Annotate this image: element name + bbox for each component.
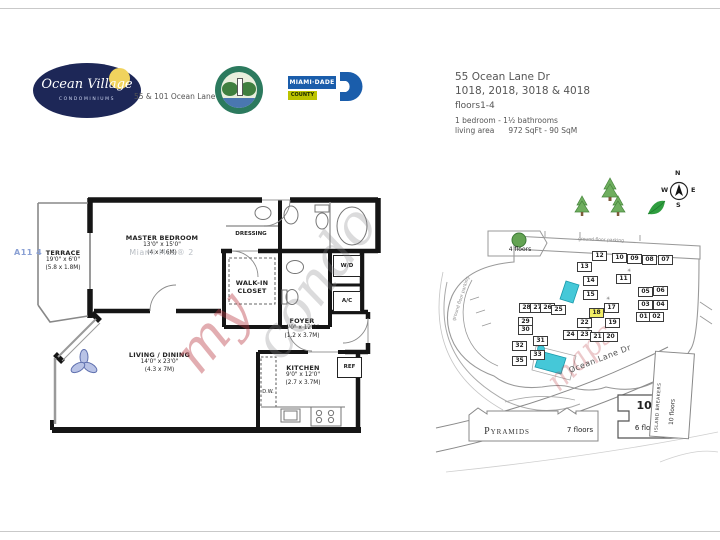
unit-box-30: 30 — [518, 325, 533, 335]
floorplan-sheet: Ocean Village CONDOMINIUMS 55 & 101 Ocea… — [0, 0, 720, 540]
unit-box-08: 08 — [642, 255, 657, 265]
unit-box-10: 10 — [612, 253, 627, 263]
pyramids-floors: 7 floors — [560, 426, 600, 435]
unit-box-11: 11 — [616, 274, 631, 284]
compass-w: W — [661, 186, 668, 194]
four-floors-label: 4 floors — [498, 246, 542, 254]
island-breakers-building: ISLAND BREAKERS 10 floors — [649, 351, 695, 440]
unit-box-04: 04 — [653, 300, 668, 310]
unit-box-22: 22 — [577, 318, 592, 328]
unit-box-33: 33 — [530, 350, 545, 360]
unit-box-09: 09 — [627, 254, 642, 264]
compass-e: E — [691, 186, 695, 194]
dressing-label: DRESSING — [225, 231, 277, 238]
walkin-closet-label: WALK-IN CLOSET — [229, 279, 275, 296]
refrigerator-box: REF — [337, 357, 362, 378]
unit-box-24: 24 — [563, 330, 578, 340]
unit-box-18: 18 — [589, 308, 604, 318]
compass-icon — [671, 183, 688, 200]
unit-box-31: 31 — [533, 336, 548, 346]
unit-box-14: 14 — [583, 276, 598, 286]
unit-box-12: 12 — [592, 251, 607, 261]
unit-box-32: 32 — [512, 341, 527, 351]
unit-box-05: 05 — [638, 287, 653, 297]
unit-box-03: 03 — [638, 300, 653, 310]
unit-box-02: 02 — [649, 312, 664, 322]
pyramids-name: Pyramids — [477, 425, 537, 438]
kitchen-label: KITCHEN 9'0" x 12'0" (2.7 x 3.7M) — [272, 364, 334, 388]
bath2-sink-icon — [287, 261, 304, 274]
pool-icon-upper — [560, 281, 579, 303]
tree-top-icon — [512, 233, 526, 247]
unit-box-07: 07 — [658, 255, 673, 265]
toilet2-icon — [286, 290, 298, 305]
unit-box-15: 15 — [583, 290, 598, 300]
bidet-icon — [284, 206, 298, 224]
stove-icon — [311, 407, 341, 426]
stair-icon: ✳ — [606, 296, 610, 302]
toilet-icon — [316, 213, 328, 229]
dishwasher-label: D.W. — [258, 389, 278, 396]
living-dining-label: LIVING / DINING 14'0" x 23'0" (4.3 x 7M) — [112, 351, 207, 375]
ceiling-fan-icon — [69, 350, 98, 375]
island-breakers-name: ISLAND BREAKERS — [654, 358, 664, 432]
floorplan-walls — [52, 198, 378, 430]
mls-watermark: A11 4 Miami MLS® 2 — [14, 248, 194, 257]
compass-n: N — [675, 169, 680, 177]
floorplan-fixtures — [229, 205, 367, 426]
unit-box-25: 25 — [551, 305, 566, 315]
unit-box-19: 19 — [605, 318, 620, 328]
unit-box-13: 13 — [577, 262, 592, 272]
unit-box-35: 35 — [512, 356, 527, 366]
unit-box-17: 17 — [604, 303, 619, 313]
island-breakers-floors: 10 floors — [668, 367, 679, 425]
unit-box-06: 06 — [653, 286, 668, 296]
ac-box: A/C — [333, 291, 361, 312]
unit-box-20: 20 — [603, 332, 618, 342]
washer-dryer-box: W/D — [333, 255, 361, 277]
dressing-sink-icon — [255, 207, 271, 220]
foyer-label: FOYER 4'0" x 12'0" (1.2 x 3.7M) — [272, 317, 332, 341]
tree-icons — [575, 178, 625, 216]
leaf-icon — [648, 201, 665, 214]
bathtub-icon — [337, 207, 367, 245]
compass-s: S — [676, 201, 681, 209]
